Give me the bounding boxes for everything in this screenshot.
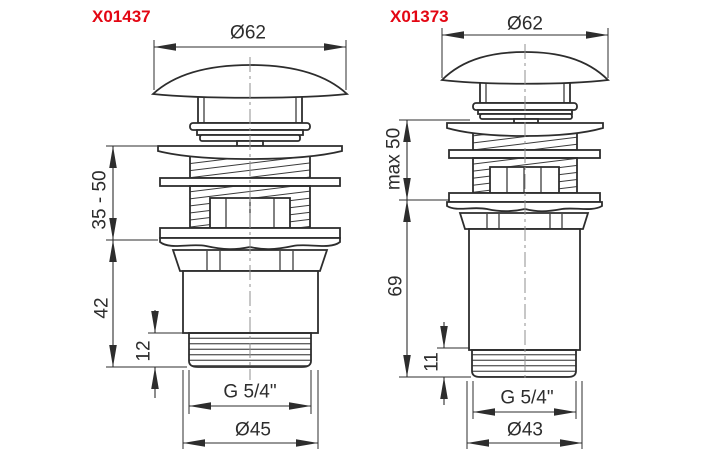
dim-body-height-left: 42 (93, 297, 112, 318)
valve-right (399, 28, 608, 449)
dim-bottom-diameter-left: Ø45 (232, 421, 274, 440)
dim-thread-length-right: 11 (423, 352, 442, 372)
dim-bottom-diameter-right: Ø43 (504, 421, 546, 440)
dim-thread-size-left: G 5/4" (220, 383, 279, 402)
cap-neck-right (442, 52, 608, 123)
body-left (158, 146, 342, 367)
technical-drawing-canvas: X01437 Ø62 35 - 50 42 12 G 5/4" Ø45 X013… (0, 0, 705, 450)
dim-top-diameter-left: Ø62 (227, 24, 269, 43)
part-number-right: X01373 (390, 8, 449, 25)
nut-right (460, 213, 588, 229)
dim-thread-length-left: 12 (135, 340, 154, 361)
thread-tail-right (472, 350, 576, 377)
dim-mount-range-right: max 50 (385, 128, 404, 190)
dim-mount-range-left: 35 - 50 (91, 170, 110, 229)
dim-body-height-right: 69 (387, 275, 406, 296)
dim-thread-size-right: G 5/4" (497, 389, 556, 408)
part-number-left: X01437 (92, 8, 151, 25)
dim-top-diameter-right: Ø62 (504, 15, 546, 34)
